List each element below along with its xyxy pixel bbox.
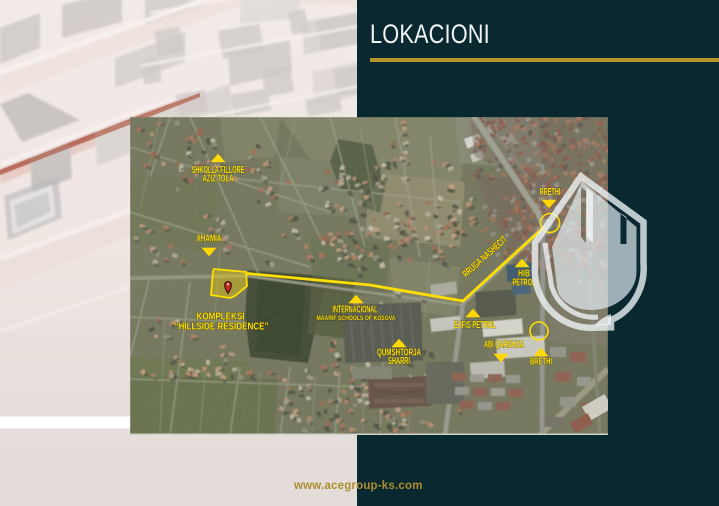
svg-text:AZIZ TOLA: AZIZ TOLA — [203, 174, 234, 185]
svg-text:ABI QARSHIJA: ABI QARSHIJA — [484, 340, 524, 351]
svg-text:BRETHI: BRETHI — [530, 357, 552, 368]
svg-text:XHAMIA: XHAMIA — [197, 234, 222, 245]
svg-text:INTERNACIONAL: INTERNACIONAL — [333, 305, 378, 316]
svg-text:SHARRI: SHARRI — [388, 356, 410, 367]
svg-text:“HILLSIDE RESIDENCE”: “HILLSIDE RESIDENCE” — [175, 321, 269, 333]
svg-text:MAARIF SCHOOLS OF KOSOVA: MAARIF SCHOOLS OF KOSOVA — [317, 315, 396, 322]
svg-text:EXFIS PETROL: EXFIS PETROL — [454, 320, 496, 331]
